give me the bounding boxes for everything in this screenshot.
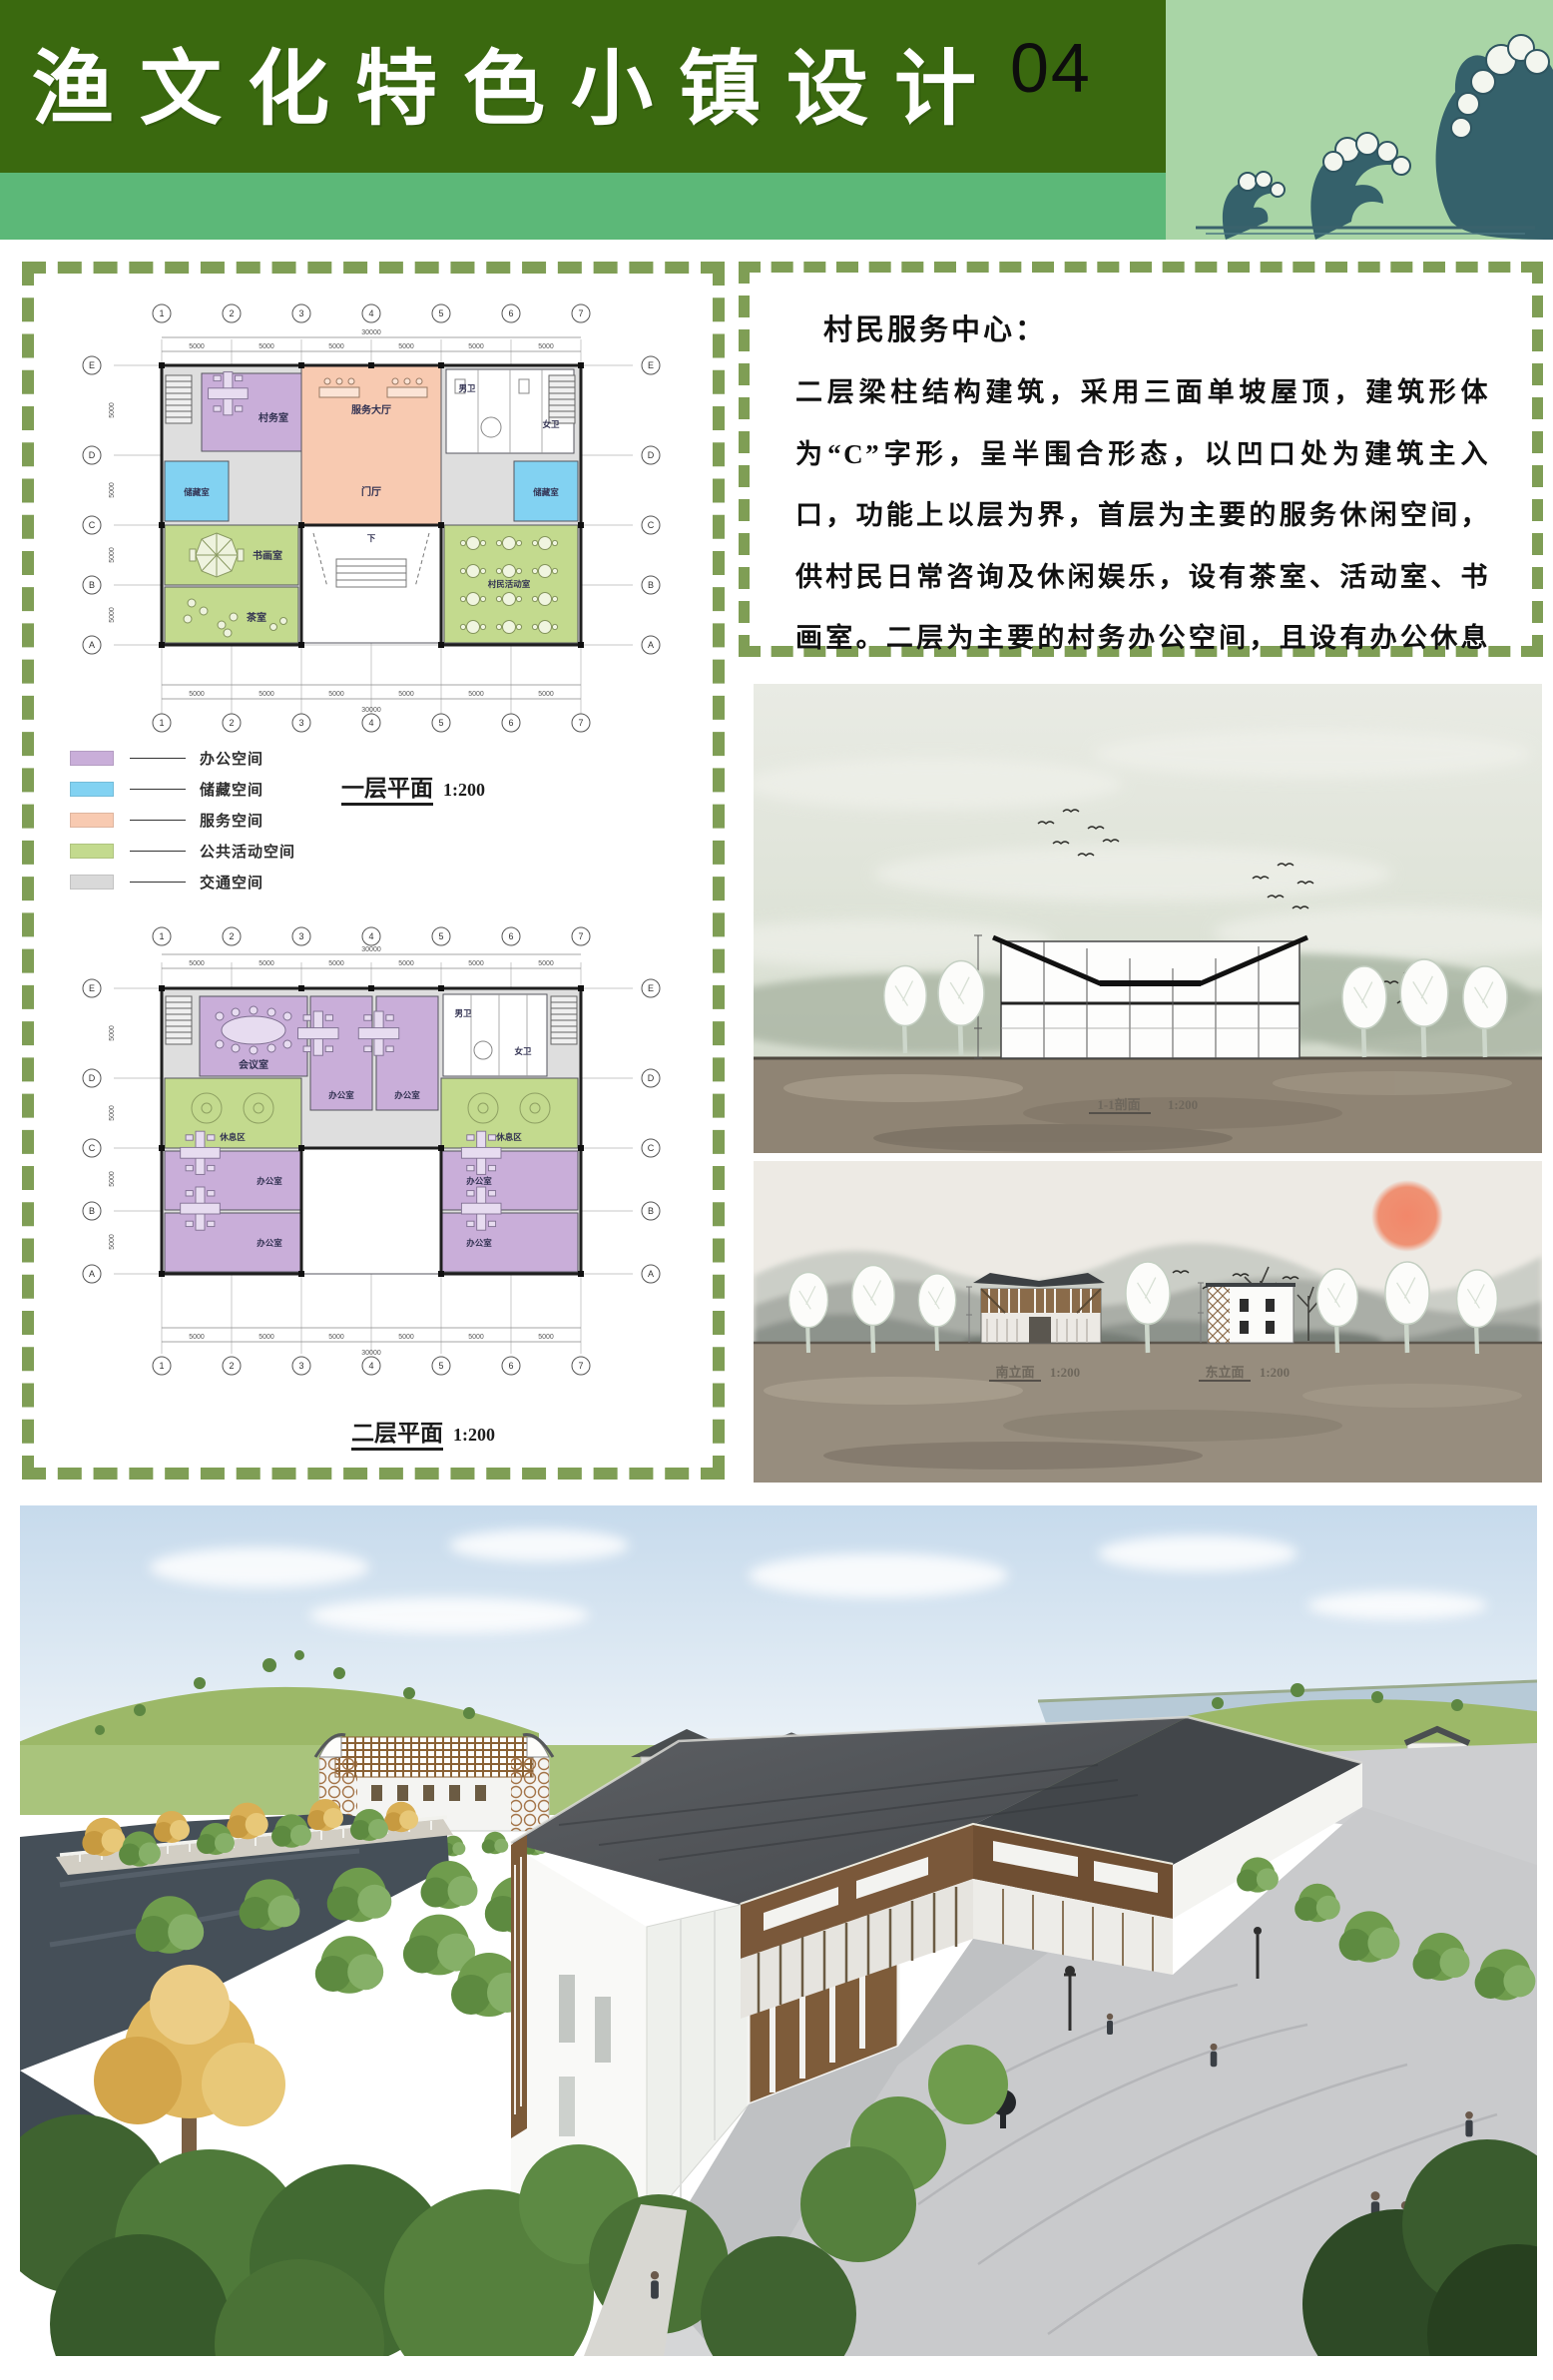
room-label: 村民活动室 (488, 579, 531, 589)
room-label: 办公室 (466, 1238, 492, 1248)
svg-text:E: E (89, 360, 95, 370)
room-label: 女卫 (542, 419, 560, 429)
legend-label: 交通空间 (200, 872, 263, 892)
svg-text:5: 5 (438, 931, 443, 941)
svg-text:5000: 5000 (189, 691, 205, 698)
svg-text:1: 1 (159, 308, 164, 318)
svg-text:1-1剖面: 1-1剖面 (1097, 1097, 1140, 1112)
svg-text:30000: 30000 (361, 329, 381, 336)
svg-text:B: B (89, 580, 95, 590)
room-label: 会议室 (239, 1058, 268, 1071)
svg-text:A: A (89, 1269, 95, 1279)
legend-item: 服务空间 (70, 809, 359, 831)
svg-text:2: 2 (229, 1361, 234, 1371)
building-section (974, 935, 1307, 1058)
svg-text:5000: 5000 (328, 960, 344, 967)
sheet-number: 04 (1010, 28, 1092, 108)
room-label: 储藏室 (532, 487, 559, 497)
south-elevation-building (966, 1273, 1105, 1343)
description-panel: 村民服务中心： 二层梁柱结构建筑，采用三面单坡屋顶，建筑形体为“C”字形，呈半围… (739, 262, 1543, 657)
svg-text:5000: 5000 (398, 960, 414, 967)
room-label: 书画室 (253, 549, 282, 562)
svg-text:5: 5 (438, 308, 443, 318)
svg-text:D: D (89, 450, 96, 460)
legend-label: 服务空间 (200, 810, 263, 831)
svg-text:5000: 5000 (109, 1234, 116, 1250)
svg-text:5000: 5000 (109, 1171, 116, 1187)
svg-text:5000: 5000 (538, 960, 554, 967)
east-elevation-building (1198, 1283, 1295, 1343)
svg-text:5000: 5000 (538, 1334, 554, 1341)
svg-text:5000: 5000 (468, 1334, 484, 1341)
legend-item: 办公空间 (70, 747, 359, 769)
legend-label: 公共活动空间 (200, 841, 295, 862)
svg-text:5000: 5000 (259, 1334, 274, 1341)
room-label: 储藏室 (183, 487, 210, 497)
svg-text:4: 4 (368, 931, 373, 941)
svg-text:4: 4 (368, 718, 373, 728)
description-body: 二层梁柱结构建筑，采用三面单坡屋顶，建筑形体为“C”字形，呈半围合形态，以凹口处… (795, 362, 1490, 731)
svg-text:5000: 5000 (468, 343, 484, 350)
plan1-caption: 一层平面1:200 (341, 769, 485, 803)
svg-text:7: 7 (578, 931, 583, 941)
svg-text:D: D (89, 1073, 96, 1083)
svg-text:5000: 5000 (259, 691, 274, 698)
svg-text:1: 1 (159, 931, 164, 941)
svg-text:5000: 5000 (189, 960, 205, 967)
section-rendering: 1-1剖面 1:200 (754, 684, 1542, 1153)
svg-text:B: B (648, 580, 654, 590)
legend-item: 交通空间 (70, 871, 359, 892)
room-label: 休息区 (219, 1132, 246, 1142)
svg-text:6: 6 (508, 718, 513, 728)
svg-text:6: 6 (508, 931, 513, 941)
header-band-light (0, 173, 1166, 240)
legend-swatch (70, 813, 114, 828)
second-floor-plan-drawing: 会议室 办公室 办公室 男卫 女卫 休息区 休息区 办公室 办公室 办公室 办公… (52, 908, 695, 1382)
aerial-perspective-render (20, 1505, 1537, 2356)
sun (1371, 1180, 1443, 1252)
room-label: 办公室 (394, 1090, 420, 1100)
svg-text:6: 6 (508, 1361, 513, 1371)
svg-text:30000: 30000 (361, 707, 381, 714)
poster-page: 渔文化特色小镇设计 04 (0, 0, 1553, 2380)
svg-text:3: 3 (298, 308, 303, 318)
svg-text:D: D (648, 450, 655, 460)
svg-text:5000: 5000 (109, 482, 116, 498)
room-label: 男卫 (454, 1008, 472, 1018)
svg-text:D: D (648, 1073, 655, 1083)
svg-text:5000: 5000 (189, 1334, 205, 1341)
svg-text:7: 7 (578, 308, 583, 318)
legend: 办公空间 储藏空间 服务空间 公共活动空间 交通空间 (70, 747, 359, 901)
svg-text:3: 3 (298, 1361, 303, 1371)
svg-text:2: 2 (229, 718, 234, 728)
svg-text:5000: 5000 (468, 691, 484, 698)
svg-text:C: C (648, 1143, 655, 1153)
plan2-caption: 二层平面1:200 (351, 1414, 495, 1448)
svg-text:5000: 5000 (398, 691, 414, 698)
legend-swatch (70, 875, 114, 890)
legend-label: 办公空间 (200, 748, 263, 769)
svg-text:5000: 5000 (109, 1105, 116, 1121)
svg-text:1: 1 (159, 718, 164, 728)
legend-swatch (70, 782, 114, 797)
svg-text:5000: 5000 (109, 402, 116, 418)
svg-text:30000: 30000 (361, 946, 381, 953)
wave-illustration (1166, 0, 1553, 240)
svg-text:6: 6 (508, 308, 513, 318)
room-label: 男卫 (458, 383, 476, 393)
svg-text:B: B (89, 1206, 95, 1216)
svg-text:1:200: 1:200 (1050, 1365, 1080, 1380)
svg-text:3: 3 (298, 718, 303, 728)
svg-text:A: A (648, 640, 654, 650)
room-label: 门厅 (361, 485, 381, 498)
svg-text:4: 4 (368, 308, 373, 318)
room-label: 休息区 (495, 1132, 522, 1142)
svg-text:7: 7 (578, 1361, 583, 1371)
wave-icon (1166, 0, 1553, 240)
svg-text:1:200: 1:200 (1260, 1365, 1290, 1380)
svg-text:5000: 5000 (538, 691, 554, 698)
svg-text:3: 3 (298, 931, 303, 941)
room-label: 女卫 (514, 1046, 532, 1056)
svg-text:东立面: 东立面 (1205, 1365, 1244, 1380)
first-floor-plan-drawing: 村务室 服务大厅 门厅 男卫 女卫 储藏室 储藏室 书画室 茶室 村民活动室 下 (52, 288, 695, 739)
room-label: 办公室 (466, 1176, 492, 1186)
svg-text:5000: 5000 (398, 1334, 414, 1341)
svg-text:5: 5 (438, 1361, 443, 1371)
svg-text:30000: 30000 (361, 1350, 381, 1357)
room-label: 办公室 (257, 1238, 282, 1248)
svg-text:A: A (89, 640, 95, 650)
svg-text:C: C (89, 520, 96, 530)
floor-plans-panel: 村务室 服务大厅 门厅 男卫 女卫 储藏室 储藏室 书画室 茶室 村民活动室 下 (22, 262, 725, 1480)
svg-text:A: A (648, 1269, 654, 1279)
stair-direction-label: 下 (367, 533, 376, 543)
legend-item: 公共活动空间 (70, 840, 359, 862)
room-label: 办公室 (257, 1176, 282, 1186)
legend-label: 储藏空间 (200, 779, 263, 800)
svg-text:E: E (648, 983, 654, 993)
svg-text:7: 7 (578, 718, 583, 728)
svg-text:5000: 5000 (468, 960, 484, 967)
room-label: 村务室 (259, 411, 288, 424)
svg-text:5000: 5000 (189, 343, 205, 350)
svg-text:5000: 5000 (398, 343, 414, 350)
svg-text:5000: 5000 (109, 607, 116, 623)
svg-text:5: 5 (438, 718, 443, 728)
room-label: 服务大厅 (351, 403, 391, 416)
elevation-rendering: 南立面 1:200 东立面 1:200 (754, 1161, 1542, 1483)
svg-text:B: B (648, 1206, 654, 1216)
svg-text:5000: 5000 (259, 960, 274, 967)
svg-text:1: 1 (159, 1361, 164, 1371)
svg-text:E: E (648, 360, 654, 370)
room-label: 办公室 (328, 1090, 354, 1100)
svg-text:5000: 5000 (328, 1334, 344, 1341)
svg-text:5000: 5000 (109, 547, 116, 563)
svg-text:南立面: 南立面 (995, 1365, 1034, 1380)
room-label: 茶室 (246, 611, 266, 624)
svg-text:5000: 5000 (328, 343, 344, 350)
svg-text:4: 4 (368, 1361, 373, 1371)
svg-text:5000: 5000 (328, 691, 344, 698)
legend-swatch (70, 751, 114, 766)
svg-text:2: 2 (229, 931, 234, 941)
svg-text:5000: 5000 (109, 1025, 116, 1041)
svg-text:C: C (648, 520, 655, 530)
svg-text:2: 2 (229, 308, 234, 318)
svg-text:5000: 5000 (538, 343, 554, 350)
svg-text:E: E (89, 983, 95, 993)
description-heading: 村民服务中心： (795, 306, 1490, 348)
svg-text:5000: 5000 (259, 343, 274, 350)
page-title: 渔文化特色小镇设计 (32, 22, 1002, 141)
svg-text:1:200: 1:200 (1168, 1097, 1198, 1112)
legend-swatch (70, 844, 114, 859)
svg-text:C: C (89, 1143, 96, 1153)
legend-item: 储藏空间 (70, 778, 359, 800)
